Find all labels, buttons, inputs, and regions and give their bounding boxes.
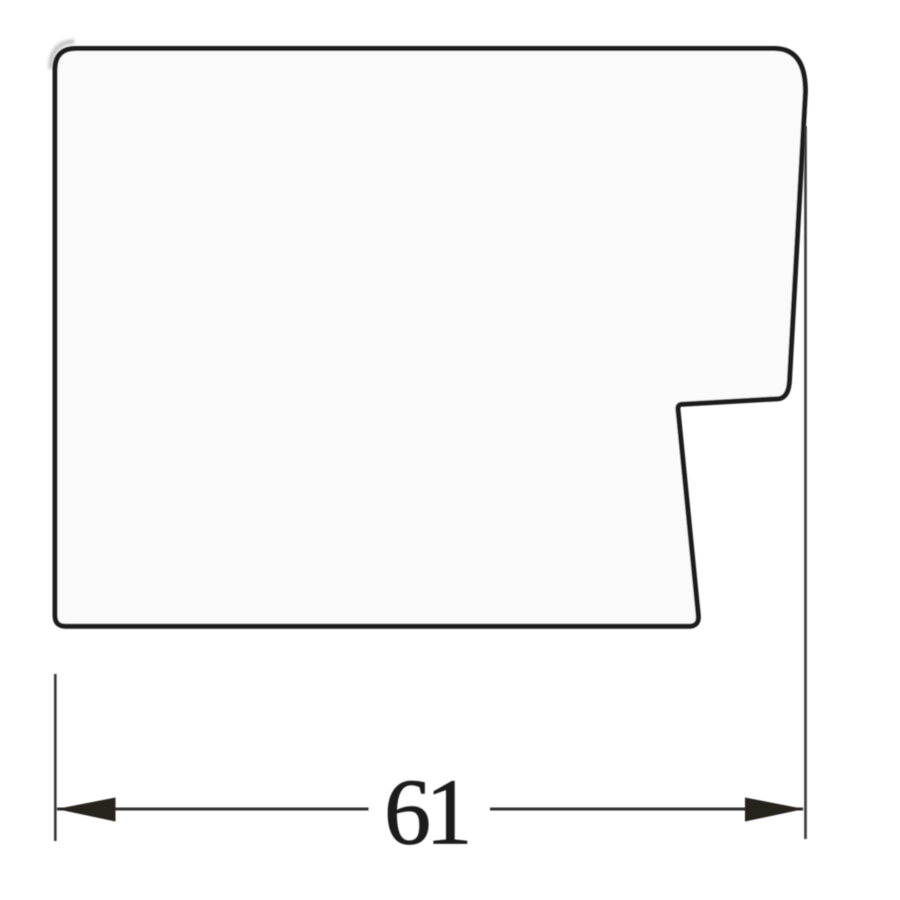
svg-text:61: 61 <box>384 761 468 865</box>
